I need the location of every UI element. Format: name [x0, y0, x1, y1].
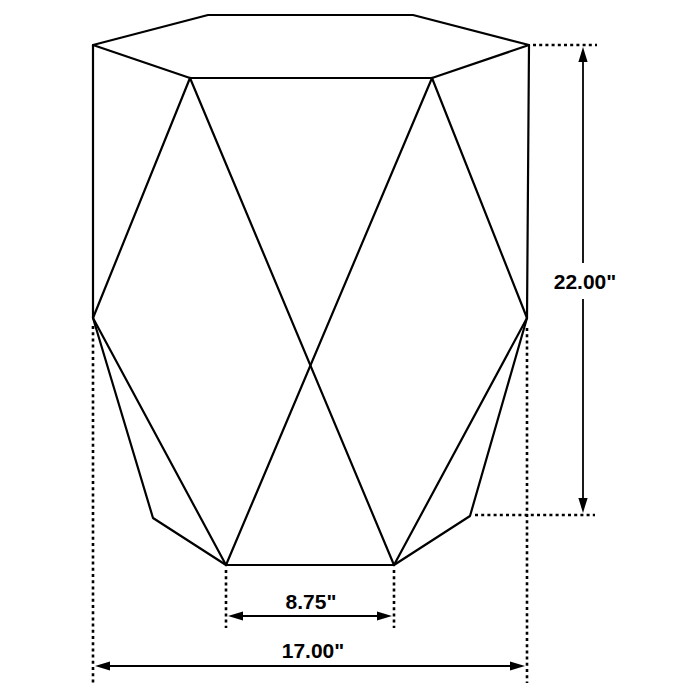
table-top-face	[93, 15, 529, 78]
height-dimension-label: 22.00"	[554, 270, 617, 293]
height-dimension: 22.00"	[475, 45, 616, 515]
base-front-edge-dimension-label: 8.75"	[286, 590, 337, 613]
facet-edge-leftwaist-to-bottomleft	[93, 318, 226, 565]
arrow-up-icon	[578, 47, 587, 62]
overall-width-dimension: 17.00"	[93, 326, 527, 683]
arrow-left-icon	[95, 661, 110, 670]
table-drawing	[93, 15, 529, 565]
facet-edge-topfrontright-to-rightwaist	[432, 78, 527, 318]
arrow-down-icon	[578, 498, 587, 513]
facet-edge-topfrontright-to-bottomleft	[226, 78, 432, 565]
facet-edge-rightwaist-to-bottomright	[394, 318, 527, 565]
arrow-left-icon	[228, 611, 243, 620]
table-left-silhouette	[93, 45, 226, 565]
dimension-diagram: 22.00" 8.75" 17.00"	[0, 0, 700, 700]
table-line-drawing-canvas: 22.00" 8.75" 17.00"	[0, 0, 700, 700]
base-front-edge-dimension: 8.75"	[226, 570, 394, 628]
facet-edge-topfrontleft-to-leftwaist	[93, 78, 190, 318]
arrow-right-icon	[510, 661, 525, 670]
overall-width-dimension-label: 17.00"	[282, 639, 345, 662]
arrow-right-icon	[377, 611, 392, 620]
facet-edge-topfrontleft-to-bottomright	[190, 78, 394, 565]
table-right-silhouette	[394, 45, 529, 565]
